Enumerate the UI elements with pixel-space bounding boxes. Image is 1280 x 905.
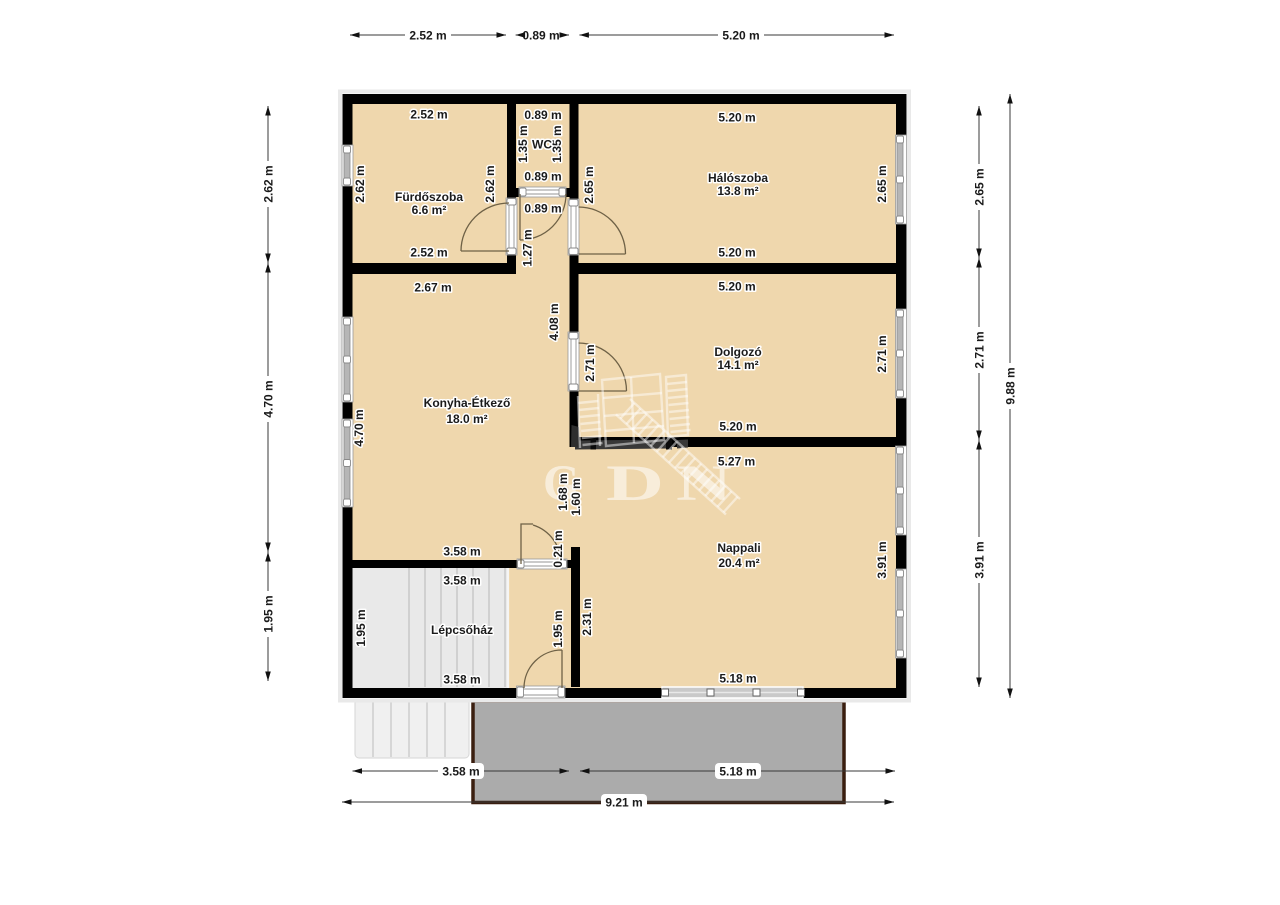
svg-text:1.27 m: 1.27 m: [521, 229, 535, 266]
svg-text:1.35 m: 1.35 m: [550, 125, 564, 162]
svg-text:1.95 m: 1.95 m: [551, 610, 565, 647]
svg-text:Konyha-Étkező: Konyha-Étkező: [424, 395, 511, 410]
svg-text:14.1 m²: 14.1 m²: [717, 358, 758, 372]
svg-text:3.58 m: 3.58 m: [443, 545, 480, 559]
svg-text:Nappali: Nappali: [717, 541, 760, 555]
svg-text:0.89 m: 0.89 m: [524, 108, 561, 122]
svg-text:9.88 m: 9.88 m: [1004, 367, 1018, 404]
svg-text:WC: WC: [532, 138, 552, 152]
svg-text:3.58 m: 3.58 m: [442, 765, 479, 779]
svg-text:2.65 m: 2.65 m: [582, 166, 596, 203]
svg-text:0.89 m: 0.89 m: [524, 202, 561, 216]
svg-text:Fürdőszoba: Fürdőszoba: [395, 190, 463, 204]
svg-text:0.21 m: 0.21 m: [551, 530, 565, 567]
svg-text:2.65 m: 2.65 m: [875, 165, 889, 202]
svg-text:2.52 m: 2.52 m: [410, 246, 447, 260]
svg-text:2.71 m: 2.71 m: [973, 331, 987, 368]
svg-text:18.0 m²: 18.0 m²: [446, 412, 487, 426]
svg-text:0.89 m: 0.89 m: [522, 29, 559, 43]
svg-text:2.62 m: 2.62 m: [483, 165, 497, 202]
svg-text:9.21 m: 9.21 m: [605, 796, 642, 810]
svg-text:2.52 m: 2.52 m: [410, 108, 447, 122]
svg-text:2.71 m: 2.71 m: [583, 344, 597, 381]
svg-text:4.70 m: 4.70 m: [262, 380, 276, 417]
svg-text:5.20 m: 5.20 m: [718, 280, 755, 294]
svg-text:2.52 m: 2.52 m: [409, 29, 446, 43]
svg-text:Hálószoba: Hálószoba: [708, 171, 768, 185]
svg-text:4.08 m: 4.08 m: [547, 303, 561, 340]
svg-text:D: D: [606, 456, 664, 512]
svg-text:5.20 m: 5.20 m: [718, 246, 755, 260]
svg-text:2.62 m: 2.62 m: [262, 165, 276, 202]
svg-text:0.89 m: 0.89 m: [524, 170, 561, 184]
svg-text:1.95 m: 1.95 m: [262, 595, 276, 632]
svg-text:5.18 m: 5.18 m: [719, 672, 756, 686]
svg-text:3.91 m: 3.91 m: [973, 541, 987, 578]
svg-text:13.8 m²: 13.8 m²: [717, 184, 758, 198]
svg-text:1.95 m: 1.95 m: [354, 609, 368, 646]
svg-text:Dolgozó: Dolgozó: [714, 345, 761, 359]
svg-text:2.71 m: 2.71 m: [875, 335, 889, 372]
svg-text:3.58 m: 3.58 m: [443, 574, 480, 588]
svg-text:20.4 m²: 20.4 m²: [718, 556, 759, 570]
svg-text:5.18 m: 5.18 m: [719, 765, 756, 779]
svg-text:5.27 m: 5.27 m: [718, 455, 755, 469]
svg-text:2.67 m: 2.67 m: [414, 281, 451, 295]
svg-text:1.68 m: 1.68 m: [556, 473, 570, 510]
svg-text:1.35 m: 1.35 m: [516, 125, 530, 162]
svg-text:Lépcsőház: Lépcsőház: [431, 623, 493, 637]
svg-text:2.31 m: 2.31 m: [580, 598, 594, 635]
svg-text:4.70 m: 4.70 m: [352, 409, 366, 446]
svg-text:2.62 m: 2.62 m: [353, 165, 367, 202]
svg-text:5.20 m: 5.20 m: [719, 420, 756, 434]
svg-text:1.60 m: 1.60 m: [569, 478, 583, 515]
svg-text:2.65 m: 2.65 m: [973, 168, 987, 205]
svg-text:5.20 m: 5.20 m: [722, 29, 759, 43]
svg-text:3.91 m: 3.91 m: [875, 541, 889, 578]
svg-text:5.20 m: 5.20 m: [718, 111, 755, 125]
svg-text:3.58 m: 3.58 m: [443, 673, 480, 687]
svg-text:6.6 m²: 6.6 m²: [412, 203, 447, 217]
